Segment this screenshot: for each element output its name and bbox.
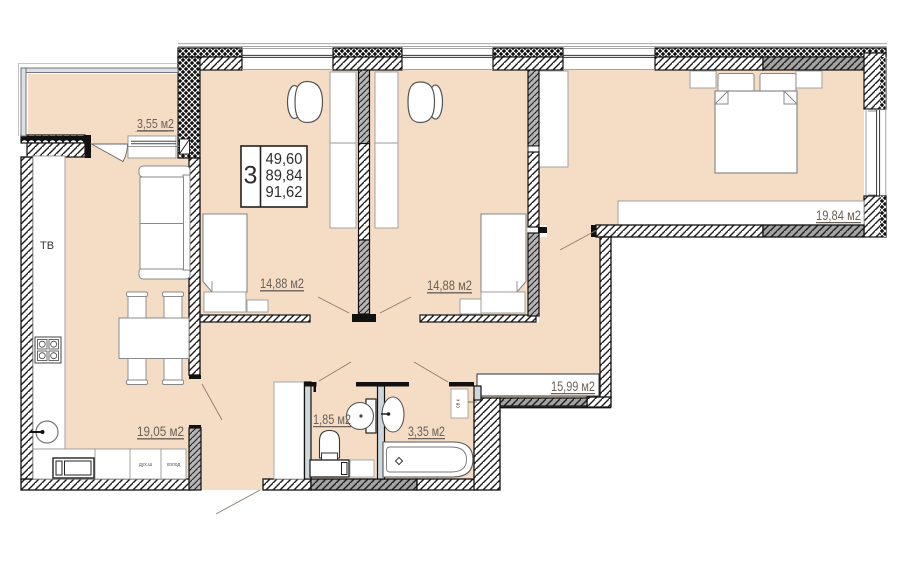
svg-text:89,84: 89,84 <box>266 168 303 185</box>
svg-text:91,62: 91,62 <box>266 184 303 201</box>
svg-text:св.к: св.к <box>456 398 462 408</box>
svg-text:холод: холод <box>167 462 181 468</box>
svg-text:49,60: 49,60 <box>266 151 303 168</box>
svg-text:19,05 м2: 19,05 м2 <box>137 423 184 439</box>
svg-text:19,84 м2: 19,84 м2 <box>816 207 861 223</box>
svg-text:3,55 м2: 3,55 м2 <box>137 116 174 131</box>
svg-text:3,35 м2: 3,35 м2 <box>408 423 445 439</box>
svg-text:ТВ: ТВ <box>40 240 54 252</box>
svg-text:15,99 м2: 15,99 м2 <box>551 378 595 394</box>
svg-text:1,85 м2: 1,85 м2 <box>313 411 351 427</box>
svg-text:14,88 м2: 14,88 м2 <box>260 275 304 291</box>
svg-text:3: 3 <box>244 162 258 190</box>
svg-text:дух.ш: дух.ш <box>139 462 152 468</box>
svg-text:14,88 м2: 14,88 м2 <box>427 277 472 293</box>
